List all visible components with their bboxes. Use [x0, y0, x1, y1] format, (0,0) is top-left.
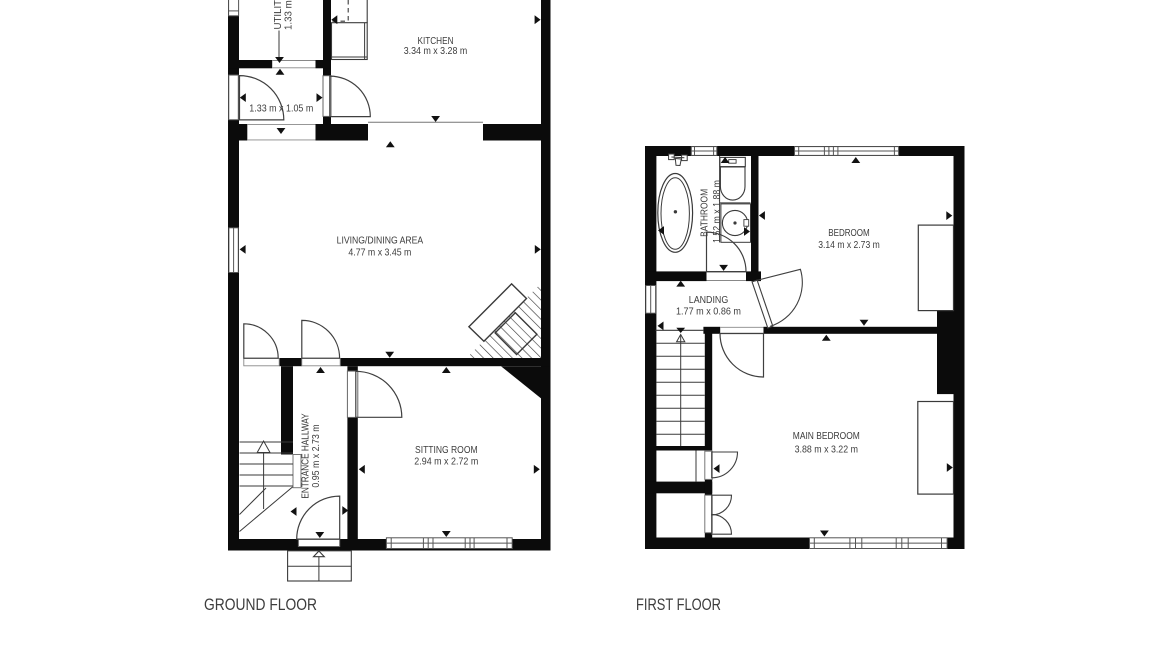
svg-text:UTILITY: UTILITY	[273, 0, 284, 30]
svg-text:1.77 m x 0.86 m: 1.77 m x 0.86 m	[676, 307, 741, 318]
svg-text:SITTING ROOM: SITTING ROOM	[415, 445, 478, 456]
svg-text:1.33 m x: 1.33 m x	[283, 0, 294, 30]
svg-text:4.77 m x 3.45 m: 4.77 m x 3.45 m	[348, 248, 411, 259]
svg-text:3.14 m x 2.73 m: 3.14 m x 2.73 m	[818, 240, 880, 251]
svg-text:FIRST FLOOR: FIRST FLOOR	[636, 596, 721, 614]
svg-text:2.94 m x 2.72 m: 2.94 m x 2.72 m	[414, 456, 478, 467]
svg-text:1.52 m x 1.88 m: 1.52 m x 1.88 m	[712, 180, 723, 243]
svg-text:MAIN BEDROOM: MAIN BEDROOM	[793, 431, 860, 442]
svg-text:0.95 m x 2.73 m: 0.95 m x 2.73 m	[311, 424, 322, 487]
svg-text:GROUND FLOOR: GROUND FLOOR	[204, 596, 317, 614]
svg-text:LIVING/DINING AREA: LIVING/DINING AREA	[337, 236, 424, 247]
svg-text:1.33 m x 1.05 m: 1.33 m x 1.05 m	[249, 103, 313, 114]
svg-text:ENTRANCE HALLWAY: ENTRANCE HALLWAY	[301, 413, 312, 499]
svg-text:3.88 m x 3.22 m: 3.88 m x 3.22 m	[795, 445, 858, 456]
svg-text:BEDROOM: BEDROOM	[828, 228, 870, 239]
svg-text:LANDING: LANDING	[689, 295, 729, 306]
svg-text:BATHROOM: BATHROOM	[700, 189, 711, 237]
svg-text:3.34 m x 3.28 m: 3.34 m x 3.28 m	[404, 46, 468, 57]
